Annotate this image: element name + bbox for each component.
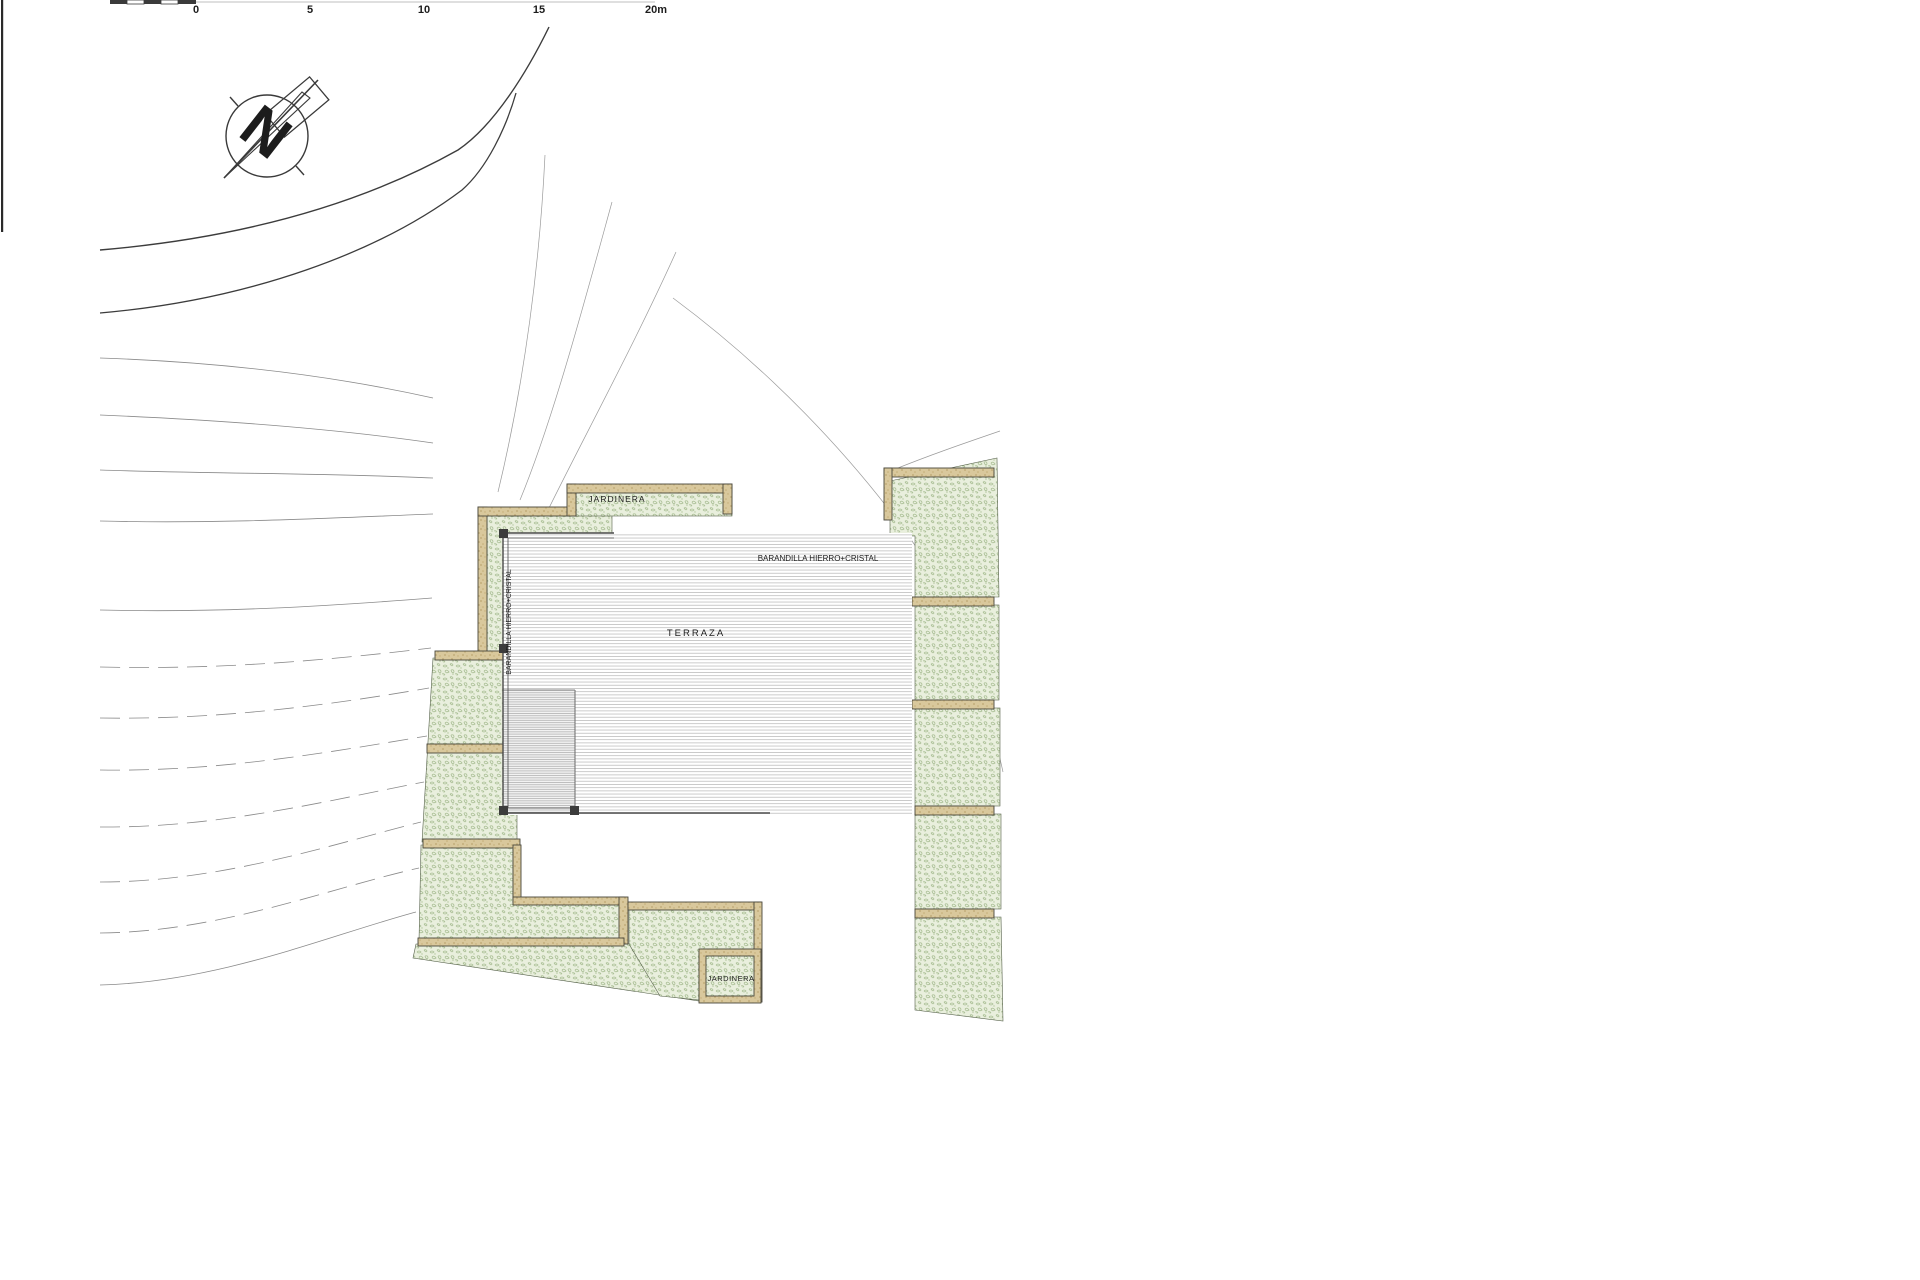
svg-text:BARANDILLA HIERRO+CRISTAL: BARANDILLA HIERRO+CRISTAL [758, 554, 879, 563]
svg-text:JARDINERA: JARDINERA [588, 494, 645, 504]
svg-text:JARDINERA: JARDINERA [707, 974, 754, 983]
svg-text:10: 10 [418, 4, 430, 16]
svg-text:BARANDILLA HIERRO+CRISTAL: BARANDILLA HIERRO+CRISTAL [506, 569, 513, 675]
svg-text:5: 5 [307, 4, 313, 16]
svg-text:TERRAZA: TERRAZA [667, 628, 725, 639]
svg-text:15: 15 [533, 4, 545, 16]
svg-text:0: 0 [193, 4, 199, 16]
svg-text:20m: 20m [645, 4, 667, 16]
